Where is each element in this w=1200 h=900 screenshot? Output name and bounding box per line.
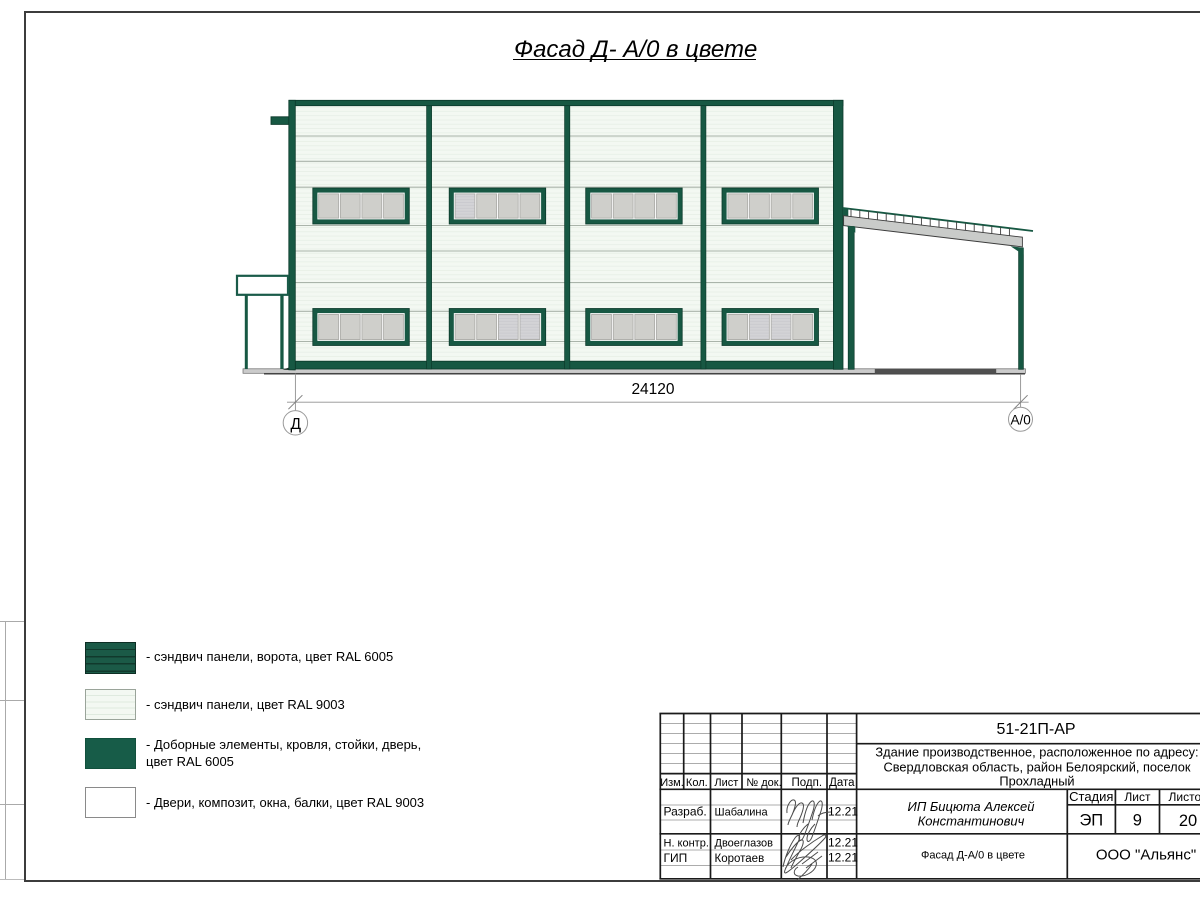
svg-text:Коротаев: Коротаев	[715, 853, 765, 865]
svg-text:12.21: 12.21	[828, 836, 858, 850]
svg-text:Двоеглазов: Двоеглазов	[715, 838, 774, 850]
svg-text:Свердловская область, район Бе: Свердловская область, район Белоярский, …	[884, 760, 1191, 775]
svg-text:Шабалина: Шабалина	[715, 807, 769, 819]
svg-text:20: 20	[1179, 812, 1197, 830]
svg-text:Изм.: Изм.	[660, 777, 684, 789]
svg-text:Лист: Лист	[1124, 790, 1151, 804]
svg-text:9: 9	[1133, 812, 1142, 830]
svg-text:ГИП: ГИП	[664, 851, 688, 865]
svg-text:Н. контр.: Н. контр.	[664, 838, 709, 850]
svg-text:Разраб.: Разраб.	[664, 805, 707, 819]
svg-text:№ док.: № док.	[746, 777, 781, 789]
svg-text:ЭП: ЭП	[1079, 812, 1103, 830]
svg-text:51-21П-АР: 51-21П-АР	[996, 721, 1075, 738]
svg-text:Подп.: Подп.	[792, 777, 823, 789]
svg-text:Лист: Лист	[714, 777, 738, 789]
svg-text:ООО "Альянс": ООО "Альянс"	[1096, 847, 1196, 864]
svg-text:Константинович: Константинович	[918, 814, 1025, 829]
svg-text:Стадия: Стадия	[1069, 789, 1113, 804]
svg-text:ИП Бицюта Алексей: ИП Бицюта Алексей	[908, 799, 1035, 814]
svg-text:Дата: Дата	[829, 777, 855, 789]
svg-text:Листов: Листов	[1169, 790, 1200, 804]
svg-text:12.21: 12.21	[828, 805, 858, 819]
svg-text:Кол.: Кол.	[686, 777, 708, 789]
svg-text:12.21: 12.21	[828, 851, 858, 865]
svg-text:Прохладный: Прохладный	[999, 774, 1074, 789]
svg-text:Фасад Д-А/0 в цвете: Фасад Д-А/0 в цвете	[921, 850, 1025, 862]
svg-text:Здание производственное, распо: Здание производственное, расположенное п…	[875, 745, 1198, 760]
